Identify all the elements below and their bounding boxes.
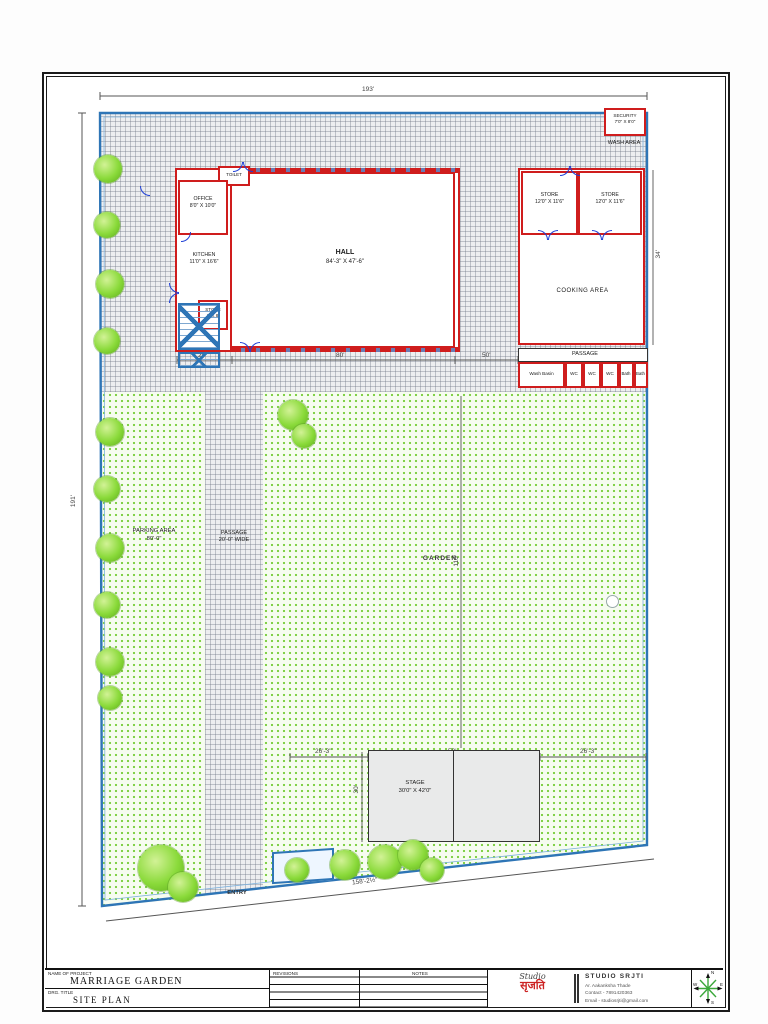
kitchen-name: KITCHEN [193,252,216,258]
stage-name: STAGE [405,780,424,786]
tree-icon [292,424,316,448]
door-icon [140,186,150,196]
security-dims: 7'0" X 8'0" [615,119,636,124]
tree-icon [94,328,120,354]
drawing-label: DRG. TITLE [48,990,73,995]
tree-icon [96,534,124,562]
compass-icon [692,970,724,1007]
studio-logo: सृजति [488,981,577,992]
hall-name: HALL [336,249,355,256]
security-name: SECURITY [613,113,636,118]
dim-stage-height: 30' [353,785,360,793]
store-2-name: STORE [601,192,619,198]
staircase [178,303,220,350]
dim-stage-right: 26'-3" [580,748,597,755]
dim-under-a-right: 50' [482,352,490,359]
site-plan: 193' 191' 158'-2½" 84'-3" 47'-6" 34'-3" … [0,0,768,1024]
door-icon [240,342,260,352]
door-icon [538,230,558,240]
compass-west-label: W [693,982,697,987]
door-icon [233,162,253,172]
project-cell: NAME OF PROJECT MARRIAGE GARDEN DRG. TIT… [45,970,269,1007]
notes-label: NOTES [412,971,428,976]
tree-icon [98,686,122,710]
tree-icon [168,872,198,902]
tree-icon [420,858,444,882]
passage-main-label: PASSAGE 20'-0" WIDE [207,530,261,545]
dim-left: 191' [70,495,77,507]
wash-basin-label: Wash Basin [519,371,564,377]
store-2-label: STORE 12'0" X 11'6" [581,192,639,206]
parking-dims: 80'-0" [147,536,162,542]
logo-cell: Studio सृजति [487,970,577,1007]
parking-name: PARKING AREA [133,528,176,534]
tree-icon [96,418,124,446]
rear-passage-label: PASSAGE [555,351,615,358]
door-icon [560,166,580,176]
tree-icon [94,476,120,502]
contact-number: Contact - 7891420363 [585,990,648,997]
fountain-dot [606,595,619,608]
tree-icon [368,845,402,879]
email-address: Email - studiosrjti@gmail.com [585,998,648,1005]
dim-stage-left: 26'-3" [315,748,332,755]
dim-bottom: 158'-2½" [352,877,378,887]
title-block: NAME OF PROJECT MARRIAGE GARDEN DRG. TIT… [45,968,723,1007]
wc-1-label: WC [566,371,582,377]
office-label: OFFICE 8'0" X 10'0" [180,196,226,210]
notes-cell: NOTES [359,970,487,1007]
bath-2-label: Bath [634,371,647,377]
kitchen-label: KITCHEN 11'0" X 16'6" [178,252,230,266]
door-icon [592,230,612,240]
passage-main-dims: 20'-0" WIDE [219,537,249,543]
tree-icon [96,648,124,676]
passage-strip [205,392,263,895]
compass-east-label: E [720,982,723,987]
bath-1-label: Bath [619,371,633,377]
tree-icon [330,850,360,880]
cooking-area-label: COOKING AREA [530,288,635,296]
revisions-label: REVISIONS [273,971,298,976]
staircase-lower [178,352,220,368]
store-1-name: STORE [541,192,559,198]
project-name: MARRIAGE GARDEN [70,976,183,987]
dim-top: 193' [362,86,374,93]
architect-name: Ar. Aakanksha Thade [585,983,648,990]
stage [368,750,540,842]
firm-info-cell: STUDIO SRJTI Ar. Aakanksha Thade Contact… [577,970,691,1007]
tree-icon [285,858,309,882]
entry-label: ENTRY [214,890,260,898]
stage-divider [453,750,454,842]
store-1-dims: 12'0" X 11'6" [535,199,564,205]
compass-south-label: S [711,1000,714,1005]
store-1-label: STORE 12'0" X 11'6" [523,192,576,206]
office-dims: 8'0" X 10'0" [190,203,216,209]
security-label: SECURITY 7'0" X 8'0" [605,113,645,125]
compass-cell: N E S W [691,970,723,1007]
store-2-dims: 12'0" X 11'6" [596,199,625,205]
drawing-name: SITE PLAN [73,995,131,1005]
firm-name: STUDIO SRJTI [585,973,644,980]
hall-label: HALL 84'-3" X 47'-6" [290,248,400,267]
parking-label: PARKING AREA 80'-0" [112,528,196,543]
hall-dims: 84'-3" X 47'-6" [326,259,364,265]
stage-dims: 30'0" X 42'0" [399,788,432,794]
dim-under-a-mid: 80' [336,352,344,359]
tree-icon [94,212,120,238]
revisions-cell: REVISIONS [269,970,359,1007]
stage-label: STAGE 30'0" X 42'0" [380,780,450,795]
garden-label: GARDEN [405,555,475,563]
tree-icon [94,155,122,183]
compass-north-label: N [711,970,714,975]
toilet-label: TOILET [221,172,247,178]
passage-main-name: PASSAGE [221,530,247,536]
tree-icon [94,592,120,618]
tree-icon [96,270,124,298]
wc-3-label: WC [602,371,618,377]
office-name: OFFICE [193,196,212,202]
wash-area-label: WASH AREA [600,140,648,147]
dim-cooking-side: 34' [655,250,662,258]
door-icon [181,232,191,242]
wc-2-label: WC [584,371,600,377]
kitchen-dims: 11'0" X 16'6" [190,259,219,265]
door-icon [169,283,179,303]
